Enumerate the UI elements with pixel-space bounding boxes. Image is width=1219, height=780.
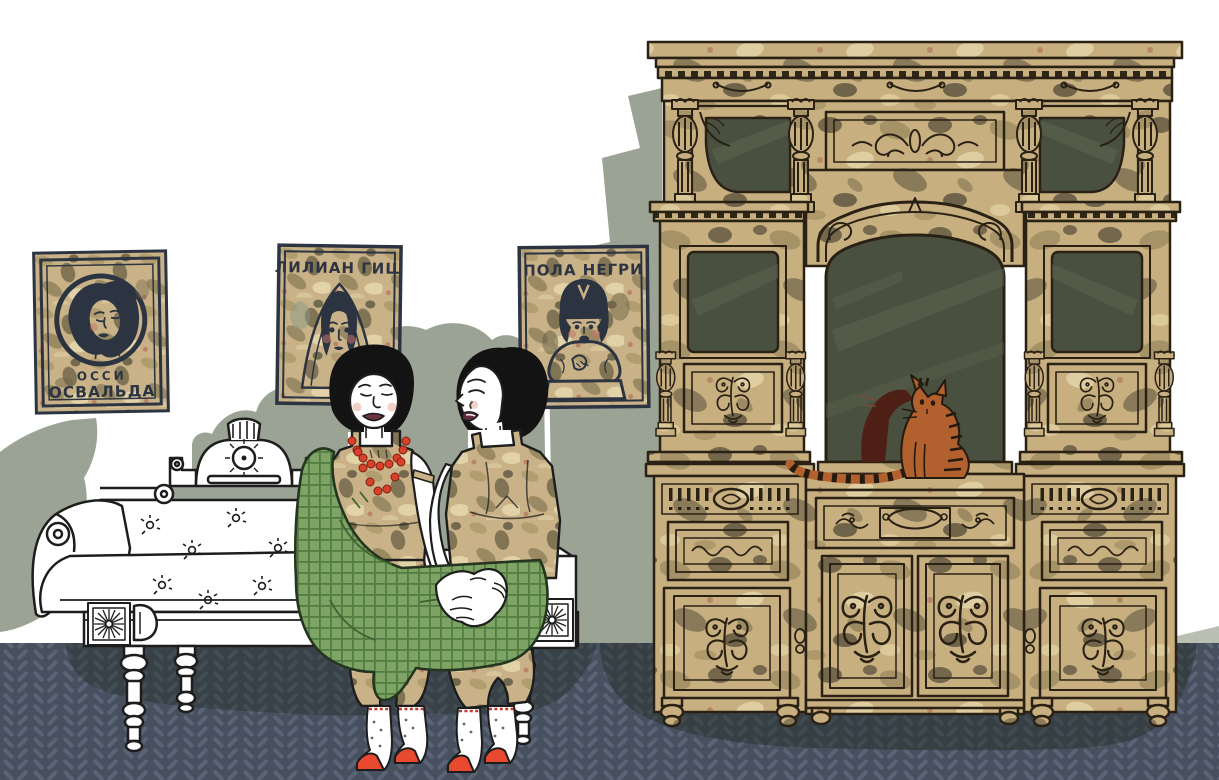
illustration-canvas: ОССИ ОСВАЛЬДА ЛИЛИАН ГИШ ПОЛА НЕГРИ xyxy=(0,0,1219,780)
cabinet-top-carved-panel xyxy=(826,112,1004,170)
poster-ossi-oswalda: ОССИ ОСВАЛЬДА xyxy=(34,251,169,413)
cabinet-pedestal xyxy=(646,464,814,726)
cabinet-center-lower xyxy=(806,490,1024,724)
gold-cabinet xyxy=(646,42,1184,726)
poster1-title-line1: ОССИ xyxy=(77,369,127,384)
cabinet-side-tower xyxy=(656,221,806,470)
poster3-title: ПОЛА НЕГРИ xyxy=(523,260,644,279)
poster2-title: ЛИЛИАН ГИШ xyxy=(275,258,405,278)
cabinet-cornice xyxy=(648,42,1182,58)
poster1-title-line2: ОСВАЛЬДА xyxy=(48,382,155,402)
scene: ОССИ ОСВАЛЬДА ЛИЛИАН ГИШ ПОЛА НЕГРИ xyxy=(0,0,1219,780)
